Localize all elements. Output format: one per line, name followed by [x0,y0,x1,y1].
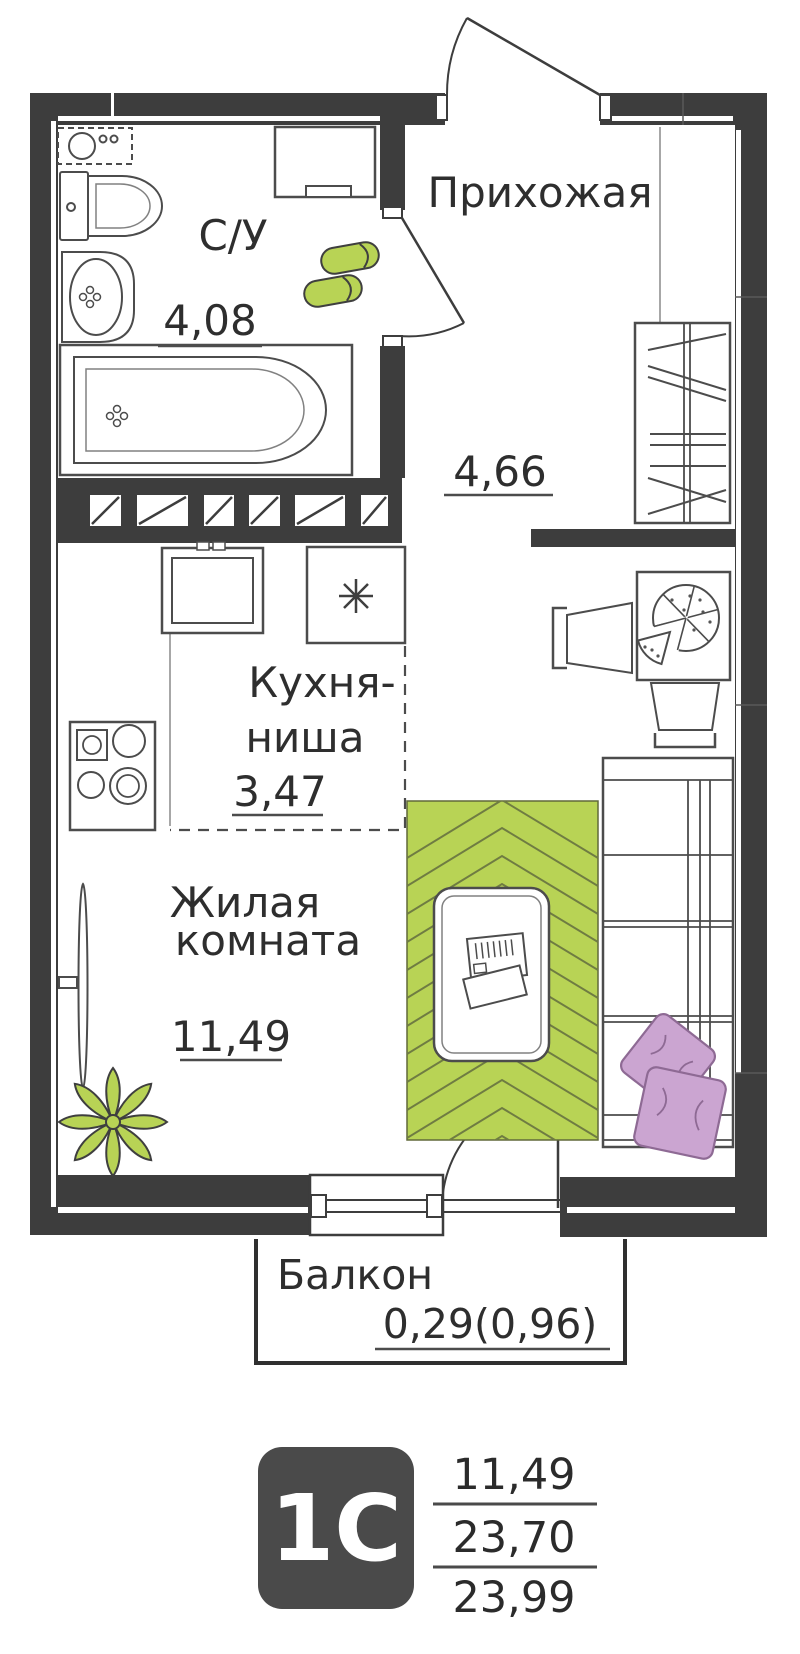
sink-icon [62,252,134,342]
apartment-type-badge-text: 1С [270,1475,402,1582]
stove-icon [70,722,155,830]
floor-plan-svg: Прихожая 4,66 С/У 4,08 Кухня- ниша 3,47 … [0,0,800,1654]
kitchen-label-line2: ниша [246,713,365,762]
bathroom-label: С/У [198,211,267,260]
hallway-label: Прихожая [428,168,653,217]
bathtub-icon [60,345,352,475]
laptop-icon [463,933,527,1008]
living-label-line2: комната [175,916,361,965]
tv-icon [59,884,88,1088]
kitchen-sink-cabinet-icon [162,542,263,633]
balcony-window [310,1175,443,1235]
floor-plan-page: Прихожая 4,66 С/У 4,08 Кухня- ниша 3,47 … [0,0,800,1654]
kitchen-label-line1: Кухня- [248,658,395,707]
legend-living-area: 11,49 [452,1450,575,1500]
vent-shaft [58,478,402,543]
bathroom-shelf-icon [275,127,375,197]
hallway-area: 4,66 [453,447,547,496]
wardrobe-icon [635,323,730,523]
kitchen-area: 3,47 [233,767,327,816]
slippers-icon [302,240,381,309]
fridge-icon [307,547,405,643]
entry-door [436,18,611,120]
bathroom-area: 4,08 [163,296,257,345]
coffee-table-icon [434,888,549,1061]
toilet-icon [60,172,162,240]
washer-icon [58,128,132,164]
dining-table-icon [637,572,730,680]
balcony-label: Балкон [277,1251,433,1299]
legend-area-no-balcony: 23,70 [452,1513,575,1563]
room-labels: Прихожая 4,66 С/У 4,08 Кухня- ниша 3,47 … [158,168,652,1349]
snowflake-icon [339,579,373,613]
plant-icon [59,1068,167,1176]
balcony-area: 0,29(0,96) [383,1300,598,1348]
legend-total-area: 23,99 [452,1573,575,1623]
living-area: 11,49 [171,1012,291,1061]
bathroom-door [383,207,464,347]
legend: 1С 11,49 23,70 23,99 [258,1447,597,1623]
chair-left-icon [553,603,632,673]
chair-bottom-icon [651,683,719,747]
